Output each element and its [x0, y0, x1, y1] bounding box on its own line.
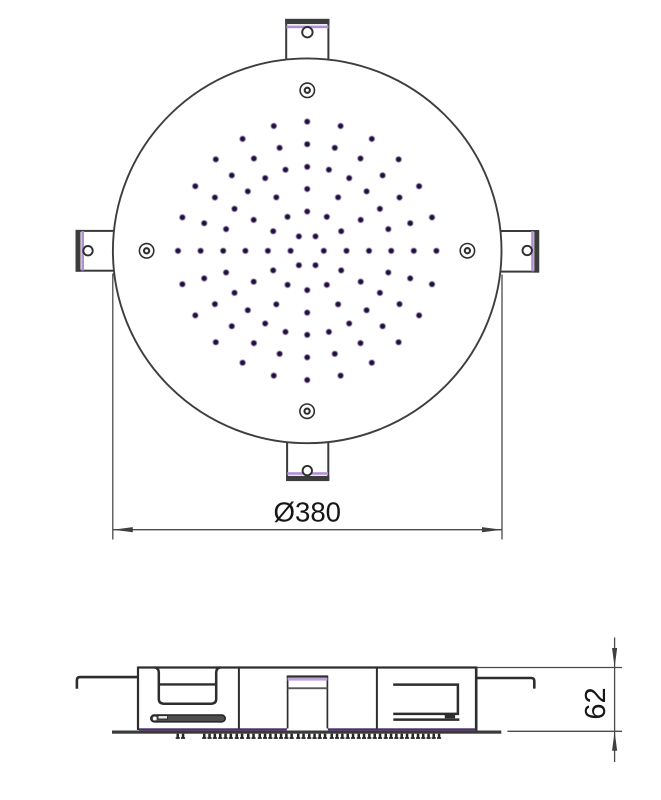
svg-text:62: 62 [580, 687, 612, 719]
svg-text:Ø380: Ø380 [274, 496, 342, 527]
